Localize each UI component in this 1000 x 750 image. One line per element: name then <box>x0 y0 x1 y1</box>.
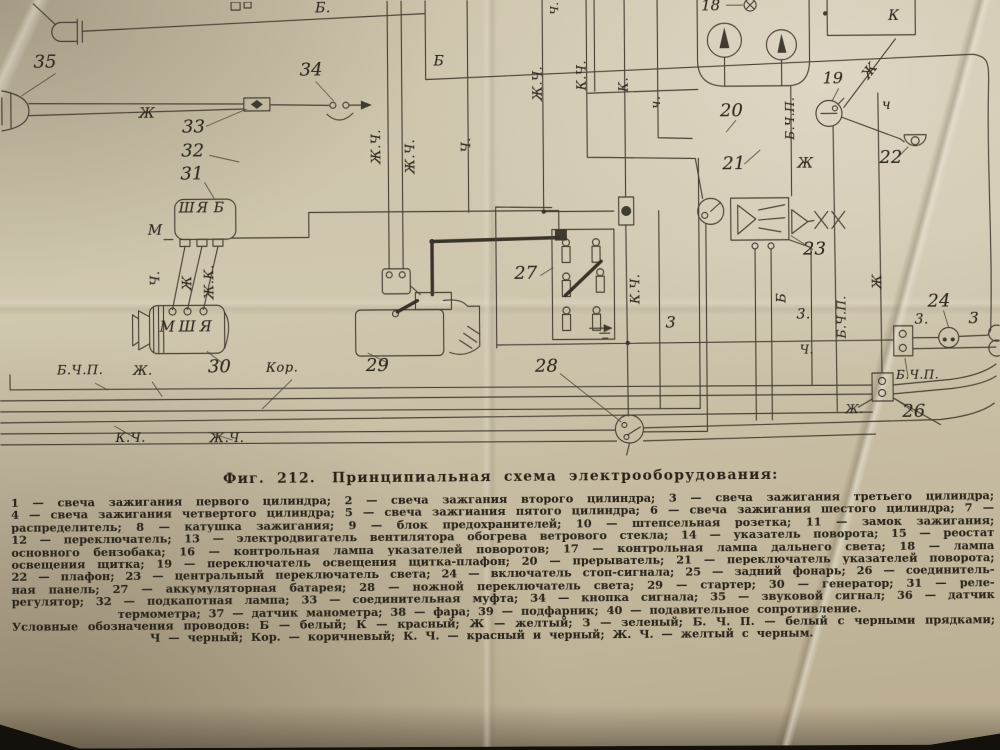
relay-terminal-ya: Я <box>197 201 208 215</box>
wire-label-bchp-v2: Б.Ч.П. <box>835 295 847 338</box>
component-number-26: 26 <box>902 403 925 421</box>
component-number-34: 34 <box>300 61 323 79</box>
wire-label-white-v: Б <box>775 293 788 303</box>
wire-label-yellowblack-v2: Ж.Ч. <box>404 139 417 174</box>
generator-terminal-m: М <box>160 320 175 335</box>
figure-number: Фиг. 212. <box>223 470 316 487</box>
component-number-28: 28 <box>535 358 558 376</box>
component-number-19: 19 <box>823 70 843 86</box>
wire-label-black-gen: Ч. <box>149 270 162 285</box>
wire-label-red-v: К. <box>618 77 631 92</box>
component-number-32: 32 <box>181 142 204 160</box>
component-number-22: 22 <box>879 149 902 167</box>
bus-label-brown: Кор. <box>266 362 298 375</box>
wire-label-redblack-v1: К.Ч. <box>576 60 589 90</box>
component-number-21: 21 <box>722 155 745 173</box>
wire-label-black-v2: ч. <box>650 95 663 108</box>
wire-label-green-2: 3. <box>796 308 810 322</box>
bus-label-yellow-left: Ж. <box>133 365 153 378</box>
wire-label-yellowblack-v3: Ж.Ч. <box>532 66 545 101</box>
wire-label-yellow-mid: Ж <box>797 157 813 171</box>
bus-label-yellowblack: Ж.Ч. <box>209 432 244 445</box>
wire-label-green-4: 3 <box>969 310 980 326</box>
component-number-18: 18 <box>701 0 720 13</box>
generator-terminal-ya: Я <box>200 319 212 334</box>
photographed-manual-page: 3534333231302928272624232221201918Б.БЖКч… <box>0 0 1000 750</box>
component-number-30: 30 <box>208 358 231 376</box>
component-number-35: 35 <box>33 53 56 71</box>
component-number-23: 23 <box>803 240 826 258</box>
component-number-31: 31 <box>180 165 203 183</box>
wire-label-redblack-v2: К.Ч. <box>629 274 642 304</box>
relay-terminal-m: М <box>148 224 162 238</box>
wire-label-black-dome: ч <box>882 98 891 112</box>
legend-block: 1 — свеча зажигания первого цилиндра; 2 … <box>11 489 995 645</box>
relay-terminal-b: Б <box>214 201 224 215</box>
wire-label-black-vert: Ч. <box>800 344 814 356</box>
wire-label-green-3: 3. <box>915 313 929 327</box>
component-number-29: 29 <box>366 357 389 375</box>
component-number-27: 27 <box>514 265 537 283</box>
wire-label-yellowred-gen: Ж.К. <box>203 264 216 299</box>
wire-label-yellow-horn: Ж <box>139 107 155 121</box>
wire-label-red-box: К <box>888 9 899 23</box>
relay-terminal-sh: Ш <box>179 201 195 215</box>
component-number-33: 33 <box>182 118 205 136</box>
page-tilt-wrapper: 3534333231302928272624232221201918Б.БЖКч… <box>0 0 1000 750</box>
bus-label-bchp-left: Б.Ч.П. <box>57 364 103 377</box>
wire-label-black-v1: Ч. <box>460 137 473 152</box>
bus-label-yellow-right: Ж. <box>845 403 863 415</box>
paper-sheet: 3534333231302928272624232221201918Б.БЖКч… <box>0 0 1000 750</box>
wire-label-yellow-v: Ж <box>871 274 884 289</box>
generator-terminal-sh: Ш <box>179 319 196 334</box>
wire-label-yellow-gen: Ж <box>181 275 194 290</box>
bus-label-redblack: К.Ч. <box>115 432 145 445</box>
component-number-24: 24 <box>927 292 950 310</box>
component-number-20: 20 <box>720 102 743 120</box>
wire-label-green-1: 3 <box>666 315 677 331</box>
wire-label-black-top: Ч. <box>549 2 560 15</box>
wire-label-yellow-diag: Ж <box>860 60 881 81</box>
bus-label-bchp-right: Б.Ч.П. <box>896 369 939 381</box>
wire-label-white-2: Б <box>433 54 444 68</box>
wire-label-yellowblack-v1: Ж.Ч. <box>370 129 383 164</box>
wire-label-bchp-v1: Б.Ч.П. <box>784 97 796 140</box>
wire-label-white-top: Б. <box>315 1 331 15</box>
